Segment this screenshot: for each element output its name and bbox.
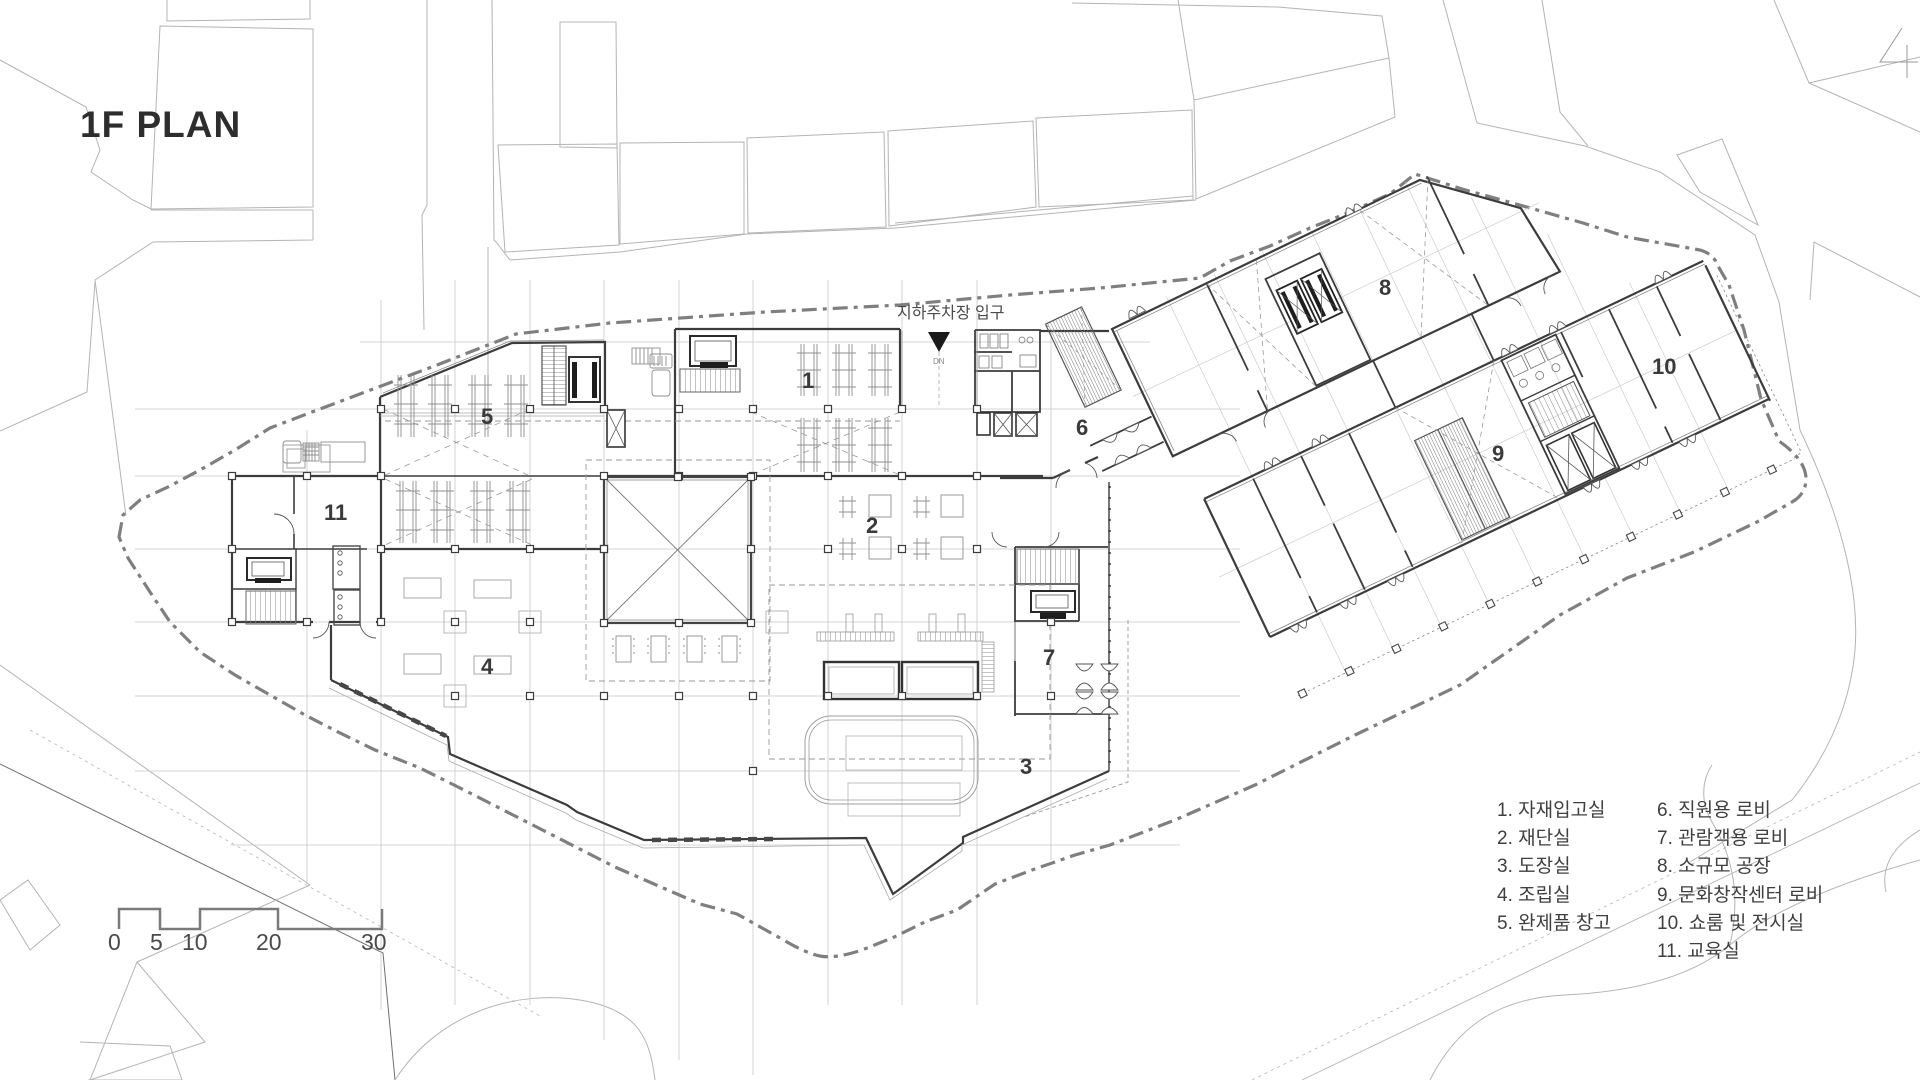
svg-text:DN: DN: [933, 357, 945, 366]
svg-text:6: 6: [1076, 415, 1088, 440]
svg-text:2: 2: [866, 513, 878, 538]
svg-text:6. 직원용 로비: 6. 직원용 로비: [1657, 799, 1771, 821]
svg-text:5: 5: [481, 404, 493, 429]
svg-text:3: 3: [1020, 754, 1032, 779]
svg-text:9: 9: [1492, 441, 1504, 466]
svg-text:11: 11: [324, 500, 347, 525]
svg-text:8. 소규모 공장: 8. 소규모 공장: [1657, 855, 1771, 877]
svg-text:30: 30: [361, 929, 387, 955]
svg-text:지하주차장 입구: 지하주차장 입구: [897, 304, 1005, 322]
svg-text:10: 10: [182, 929, 208, 955]
svg-text:10. 쇼룸 및 전시실: 10. 쇼룸 및 전시실: [1657, 912, 1804, 934]
svg-text:7. 관람객용 로비: 7. 관람객용 로비: [1657, 827, 1788, 849]
svg-text:20: 20: [256, 929, 282, 955]
svg-text:5. 완제품 창고: 5. 완제품 창고: [1497, 912, 1611, 934]
svg-text:1. 자재입고실: 1. 자재입고실: [1497, 799, 1606, 821]
svg-text:4: 4: [481, 654, 494, 679]
svg-text:1F PLAN: 1F PLAN: [80, 104, 241, 145]
svg-text:2. 재단실: 2. 재단실: [1497, 827, 1571, 849]
svg-text:1: 1: [802, 368, 814, 393]
svg-text:7: 7: [1043, 645, 1055, 670]
svg-text:10: 10: [1652, 354, 1676, 379]
svg-text:8: 8: [1379, 275, 1391, 300]
svg-text:4. 조립실: 4. 조립실: [1497, 884, 1571, 906]
svg-text:5: 5: [150, 929, 163, 955]
svg-text:9. 문화창작센터 로비: 9. 문화창작센터 로비: [1657, 884, 1823, 906]
svg-text:3. 도장실: 3. 도장실: [1497, 855, 1571, 877]
svg-text:11. 교육실: 11. 교육실: [1657, 940, 1740, 962]
svg-text:0: 0: [108, 929, 121, 955]
